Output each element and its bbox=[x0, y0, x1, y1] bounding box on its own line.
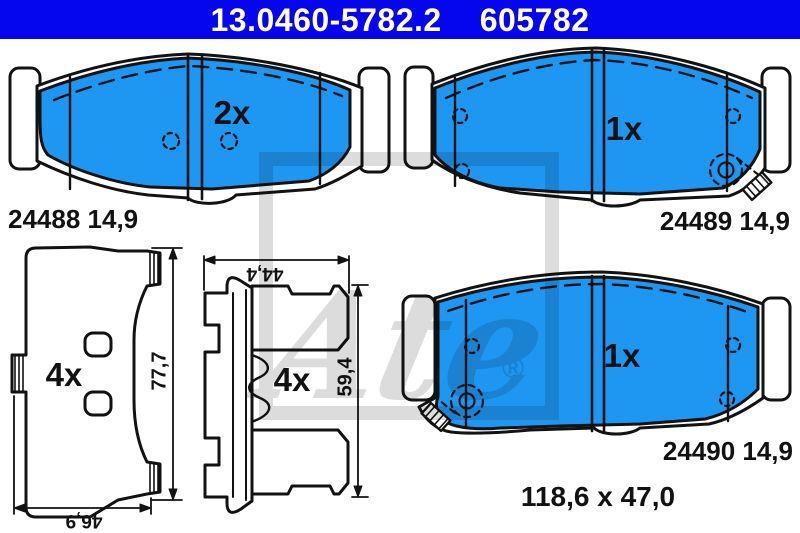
pad-drawing-24488 bbox=[10, 54, 389, 203]
dim-height-backplate: 77,7 bbox=[149, 352, 172, 391]
dim-height-profile: 59,4 bbox=[335, 358, 358, 397]
quantity-label-24490: 1x bbox=[604, 337, 641, 375]
mounting-hole bbox=[85, 333, 111, 356]
dim-width-profile: 44,4 bbox=[247, 262, 284, 284]
pad-ear-left bbox=[403, 296, 435, 400]
caption-24488: 24488 14,9 bbox=[8, 204, 138, 235]
quantity-label-24489: 1x bbox=[606, 110, 643, 148]
plate-and-clip-outline bbox=[205, 278, 252, 513]
header-bar: 13.0460-5782.2 605782 bbox=[0, 0, 800, 39]
pad-ear-right bbox=[762, 298, 790, 400]
pad-drawing-24490 bbox=[403, 272, 790, 434]
dim-width-backplate: 46,9 bbox=[66, 509, 103, 531]
drawing-sheet: 13.0460-5782.2 605782 bbox=[0, 0, 800, 533]
mounting-hole bbox=[85, 392, 111, 415]
pad-drawing-24489 bbox=[405, 48, 790, 206]
friction-material bbox=[40, 58, 350, 189]
pad-ear-left bbox=[405, 67, 433, 168]
part-number: 13.0460-5782.2 bbox=[211, 4, 442, 36]
friction-block-top bbox=[252, 286, 348, 350]
friction-block-bottom bbox=[252, 430, 348, 494]
quantity-label-backplate: 4x bbox=[46, 356, 83, 394]
backplate-outline bbox=[12, 247, 160, 517]
dim-overall-pad: 118,6 x 47,0 bbox=[521, 481, 675, 513]
reference-number: 605782 bbox=[480, 4, 590, 36]
caption-24490: 24490 14,9 bbox=[651, 436, 793, 467]
caption-24489: 24489 14,9 bbox=[648, 206, 790, 237]
quantity-label-24488: 2x bbox=[214, 94, 251, 132]
quantity-label-profile: 4x bbox=[274, 361, 311, 399]
